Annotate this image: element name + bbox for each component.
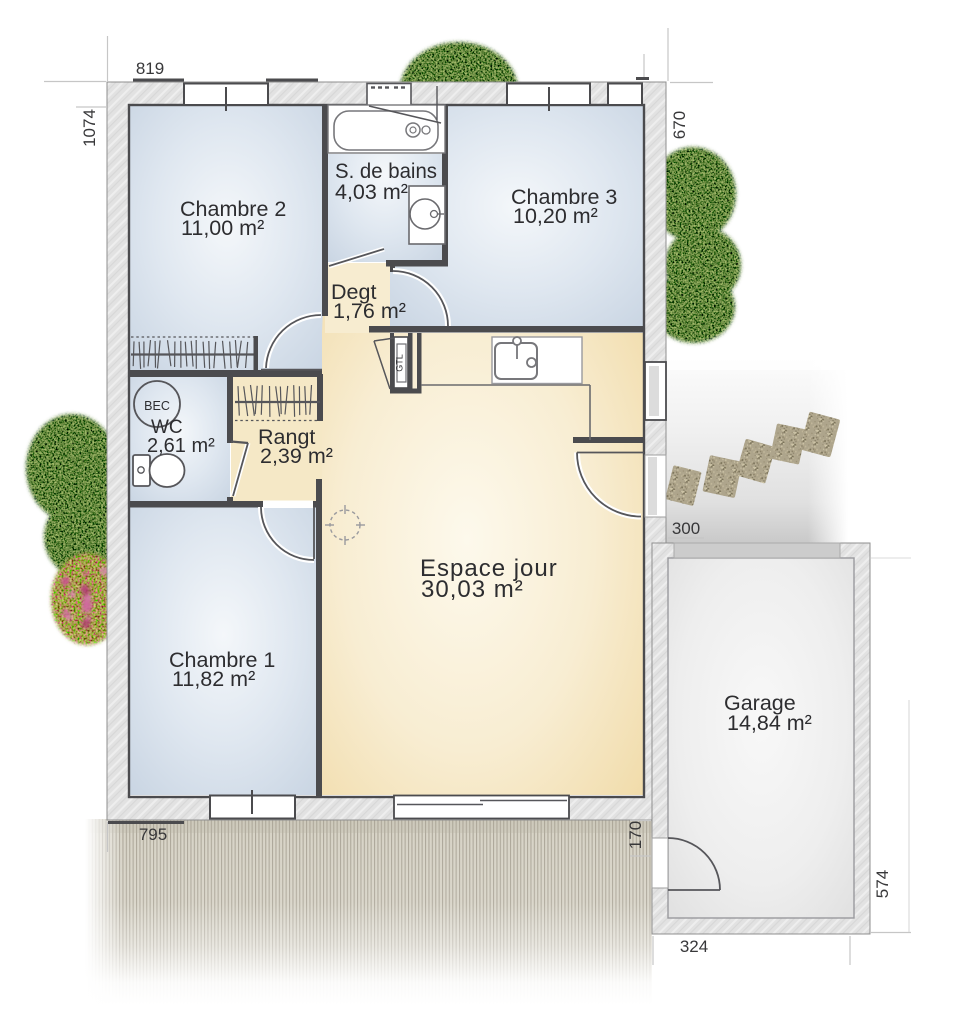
svg-text:1,76 m²: 1,76 m²	[333, 299, 406, 323]
svg-text:300: 300	[672, 519, 700, 538]
svg-text:2,39 m²: 2,39 m²	[260, 444, 333, 468]
svg-text:819: 819	[136, 59, 164, 78]
svg-text:11,00 m²: 11,00 m²	[181, 216, 264, 240]
svg-text:170: 170	[626, 821, 645, 849]
svg-text:14,84 m²: 14,84 m²	[727, 711, 812, 735]
svg-text:795: 795	[139, 825, 167, 844]
svg-text:11,82 m²: 11,82 m²	[172, 667, 255, 691]
svg-text:30,03 m²: 30,03 m²	[421, 576, 524, 603]
svg-text:2,61 m²: 2,61 m²	[147, 435, 215, 457]
svg-text:670: 670	[670, 111, 689, 139]
svg-text:10,20 m²: 10,20 m²	[513, 204, 598, 228]
svg-text:4,03 m²: 4,03 m²	[335, 180, 408, 204]
svg-text:BEC: BEC	[144, 399, 170, 413]
svg-text:574: 574	[873, 870, 892, 898]
svg-text:324: 324	[680, 937, 708, 956]
svg-text:1074: 1074	[80, 109, 99, 147]
svg-text:GTL: GTL	[395, 354, 405, 372]
